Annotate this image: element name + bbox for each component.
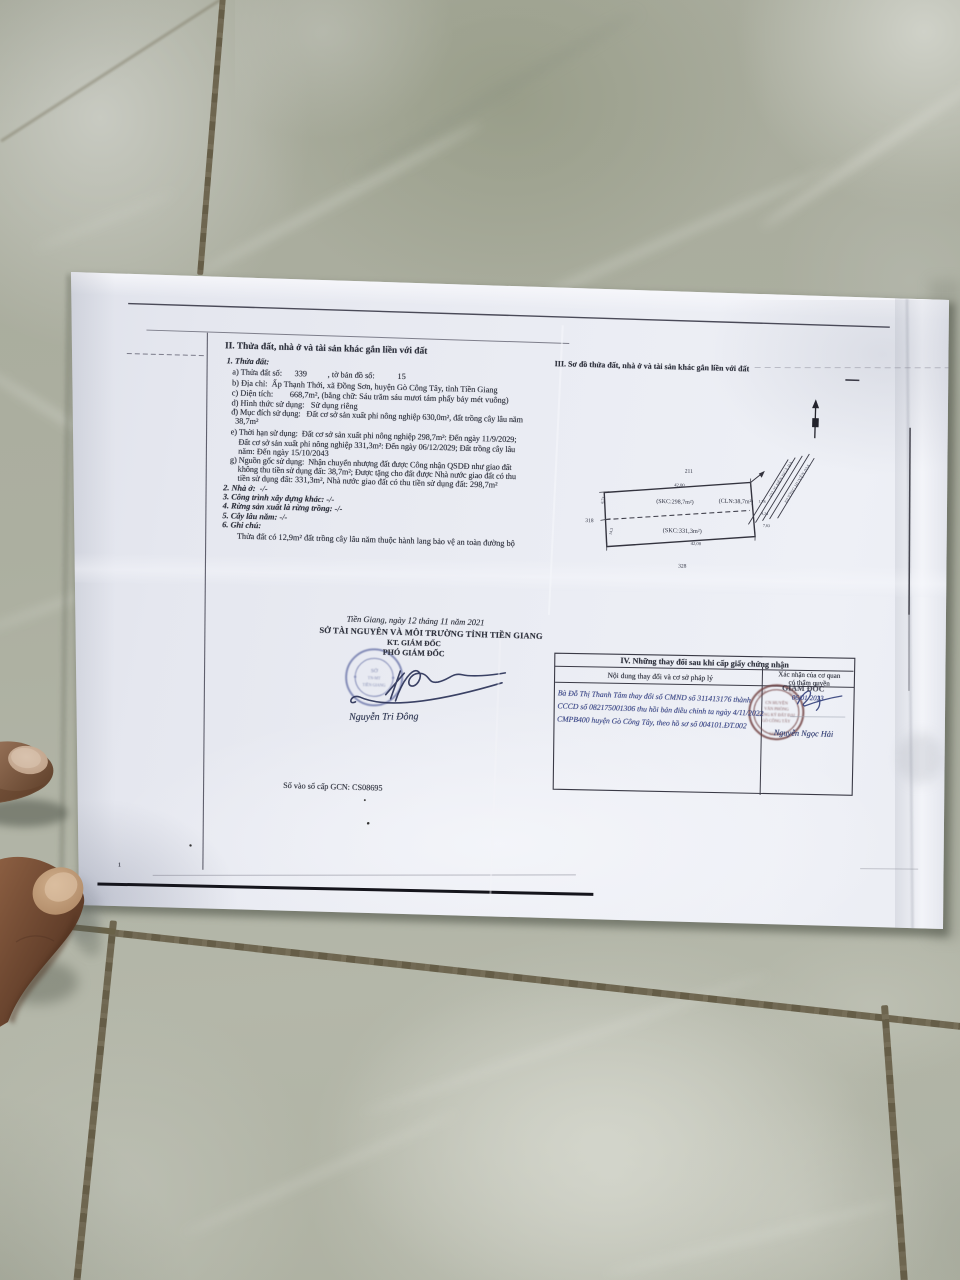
svg-text:TIỀN GIANG: TIỀN GIANG [362,682,385,688]
svg-text:TN-MT: TN-MT [368,675,381,680]
svg-text:SỞ: SỞ [371,666,379,674]
svg-text:GÒ CÔNG TÂY: GÒ CÔNG TÂY [762,718,791,724]
svg-text:42,00: 42,00 [691,541,702,547]
svg-text:(SKC:331,3m²): (SKC:331,3m²) [663,527,702,535]
svg-text:(CLN:38,7m²): (CLN:38,7m²) [719,498,754,506]
svg-text:14,3: 14,3 [607,527,614,535]
svg-text:6,73: 6,73 [599,496,606,504]
svg-text:CN HUYỆN: CN HUYỆN [765,700,789,706]
svg-text:(SKC:298,7m²): (SKC:298,7m²) [656,498,693,506]
svg-text:9,24: 9,24 [761,511,768,517]
svg-text:211: 211 [685,469,693,475]
svg-text:7,83: 7,83 [763,523,770,529]
svg-text:1,78: 1,78 [758,499,765,505]
svg-text:318: 318 [585,518,594,524]
svg-text:VĂN PHÒNG: VĂN PHÒNG [764,706,789,712]
svg-text:328: 328 [678,564,687,570]
